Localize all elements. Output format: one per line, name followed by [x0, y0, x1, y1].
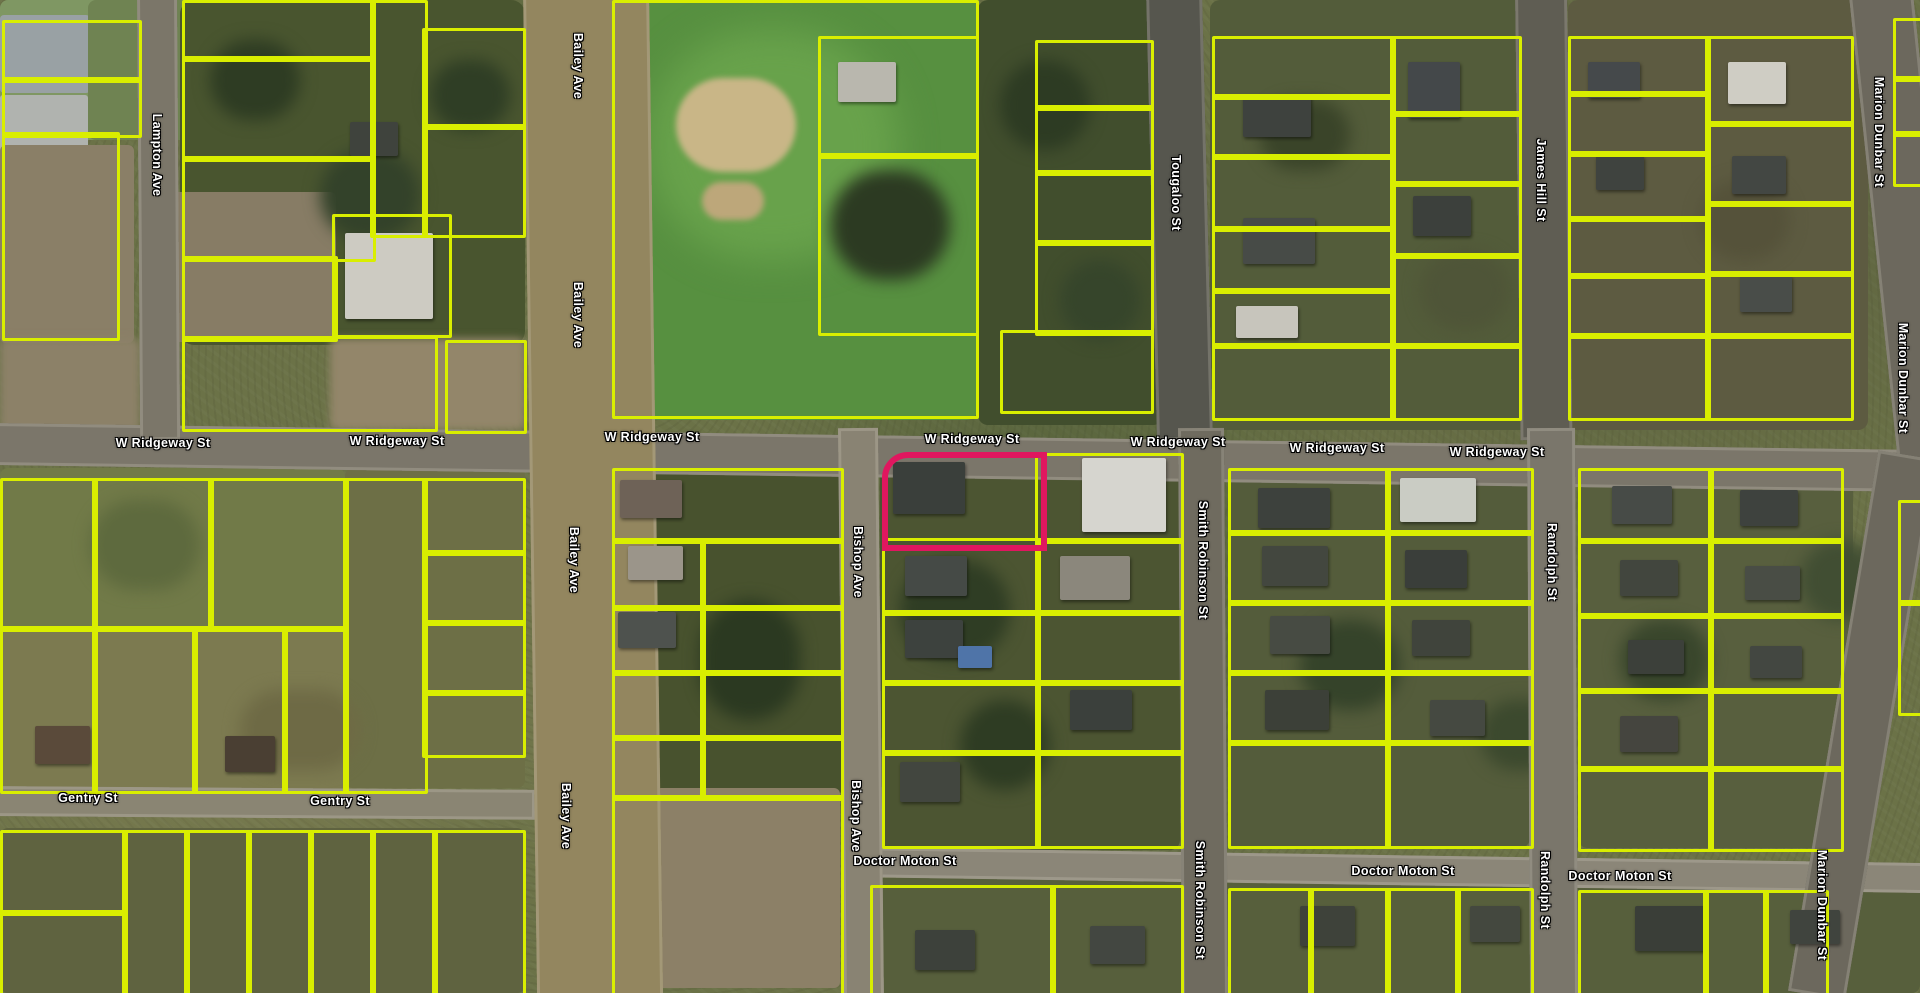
parcel-boundary[interactable] — [343, 478, 428, 794]
parcel-boundary[interactable] — [1578, 538, 1714, 619]
parcel-boundary[interactable] — [1035, 610, 1184, 686]
parcel-boundary[interactable] — [1000, 330, 1154, 414]
parcel-boundary[interactable] — [370, 830, 438, 993]
parcel-boundary[interactable] — [0, 830, 128, 916]
parcel-boundary[interactable] — [1578, 766, 1714, 852]
parcel-boundary[interactable] — [1385, 530, 1534, 606]
parcel-boundary[interactable] — [182, 256, 338, 342]
parcel-boundary[interactable] — [1705, 36, 1854, 127]
parcel-boundary[interactable] — [700, 605, 844, 676]
parcel-boundary[interactable] — [818, 36, 979, 159]
parcel-boundary[interactable] — [1705, 201, 1854, 277]
parcel-boundary[interactable] — [1390, 111, 1522, 187]
parcel-boundary[interactable] — [1568, 151, 1711, 222]
road-randolph-st — [1527, 428, 1578, 993]
parcel-boundary[interactable] — [612, 468, 844, 544]
parcel-boundary[interactable] — [208, 478, 349, 632]
parcel-boundary[interactable] — [1385, 670, 1534, 746]
road-james-hill-st — [1515, 0, 1572, 440]
parcel-boundary[interactable] — [1708, 688, 1844, 772]
parcel-boundary[interactable] — [1308, 888, 1391, 993]
parcel-boundary[interactable] — [1568, 273, 1711, 339]
parcel-boundary[interactable] — [1893, 76, 1920, 137]
road-smith-robinson-st — [1178, 428, 1228, 993]
parcel-boundary[interactable] — [1212, 154, 1396, 232]
parcel-boundary[interactable] — [1385, 600, 1534, 676]
parcel-boundary[interactable] — [1212, 343, 1396, 421]
parcel-boundary[interactable] — [92, 626, 198, 794]
parcel-boundary[interactable] — [1035, 240, 1154, 336]
parcel-boundary[interactable] — [1578, 468, 1714, 544]
parcel-boundary[interactable] — [1578, 688, 1714, 772]
parcel-boundary[interactable] — [1893, 18, 1920, 82]
parcel-boundary[interactable] — [1390, 253, 1522, 349]
parcel-boundary[interactable] — [612, 605, 706, 676]
parcel-boundary[interactable] — [700, 670, 844, 741]
parcel-boundary[interactable] — [0, 626, 98, 794]
parcel-boundary[interactable] — [1763, 890, 1829, 993]
parcel-boundary[interactable] — [1390, 343, 1522, 421]
satellite-parcel-map[interactable]: W Ridgeway StW Ridgeway StW Ridgeway StW… — [0, 0, 1920, 993]
parcel-boundary[interactable] — [192, 626, 288, 794]
parcel-boundary[interactable] — [122, 830, 190, 993]
parcel-boundary[interactable] — [700, 538, 844, 611]
parcel-boundary[interactable] — [882, 610, 1041, 686]
parcel-boundary[interactable] — [1228, 468, 1391, 536]
parcel-boundary[interactable] — [1568, 333, 1711, 421]
parcel-boundary[interactable] — [1568, 91, 1711, 157]
parcel-boundary[interactable] — [422, 690, 526, 758]
parcel-boundary[interactable] — [882, 680, 1041, 756]
parcel-boundary[interactable] — [2, 132, 120, 341]
parcel-boundary[interactable] — [1035, 750, 1184, 849]
parcel-boundary[interactable] — [2, 20, 142, 83]
parcel-boundary[interactable] — [1568, 36, 1711, 97]
parcel-boundary[interactable] — [182, 56, 376, 162]
parcel-boundary[interactable] — [612, 670, 706, 741]
parcel-boundary[interactable] — [1708, 766, 1844, 852]
parcel-boundary[interactable] — [1212, 94, 1396, 160]
parcel-boundary[interactable] — [612, 735, 706, 801]
parcel-boundary[interactable] — [1385, 740, 1534, 849]
parcel-boundary[interactable] — [1385, 468, 1534, 536]
parcel-boundary[interactable] — [1455, 888, 1534, 993]
parcel-boundary[interactable] — [1705, 121, 1854, 207]
parcel-boundary[interactable] — [432, 830, 526, 993]
parcel-boundary[interactable] — [1212, 288, 1396, 349]
parcel-boundary[interactable] — [1893, 131, 1920, 187]
parcel-boundary[interactable] — [422, 550, 526, 626]
parcel-boundary[interactable] — [1035, 453, 1184, 544]
parcel-boundary[interactable] — [1898, 500, 1920, 606]
selected-parcel-highlight[interactable] — [882, 452, 1047, 551]
parcel-boundary[interactable] — [370, 0, 428, 238]
parcel-boundary[interactable] — [1703, 890, 1769, 993]
parcel-boundary[interactable] — [308, 830, 376, 993]
parcel-boundary[interactable] — [1035, 680, 1184, 756]
parcel-boundary[interactable] — [182, 336, 438, 432]
parcel-boundary[interactable] — [818, 153, 979, 336]
parcel-boundary[interactable] — [1228, 600, 1391, 676]
parcel-boundary[interactable] — [422, 620, 526, 696]
parcel-boundary[interactable] — [1898, 600, 1920, 716]
parcel-boundary[interactable] — [612, 538, 706, 611]
parcel-boundary[interactable] — [182, 0, 376, 62]
parcel-boundary[interactable] — [870, 885, 1056, 993]
parcel-boundary[interactable] — [1385, 888, 1461, 993]
parcel-boundary[interactable] — [1212, 36, 1396, 100]
parcel-boundary[interactable] — [1390, 181, 1522, 259]
parcel-boundary[interactable] — [1708, 468, 1844, 544]
parcel-boundary[interactable] — [1035, 105, 1154, 176]
road-tougaloo-st — [1146, 0, 1213, 441]
parcel-boundary[interactable] — [1578, 890, 1709, 993]
parcel-boundary[interactable] — [422, 28, 526, 130]
parcel-boundary[interactable] — [1228, 888, 1314, 993]
parcel-boundary[interactable] — [1050, 885, 1184, 993]
parcel-boundary[interactable] — [882, 750, 1041, 849]
parcel-boundary[interactable] — [92, 478, 214, 632]
parcel-boundary[interactable] — [1035, 538, 1184, 616]
parcel-boundary[interactable] — [1212, 226, 1396, 294]
parcel-boundary[interactable] — [2, 77, 142, 138]
parcel-boundary[interactable] — [0, 478, 98, 632]
parcel-boundary[interactable] — [1705, 333, 1854, 421]
parcel-boundary[interactable] — [445, 340, 527, 434]
parcel-boundary[interactable] — [1708, 613, 1844, 694]
parcel-boundary[interactable] — [282, 626, 349, 794]
parcel-boundary[interactable] — [422, 478, 526, 556]
parcel-boundary[interactable] — [0, 910, 128, 993]
parcel-boundary[interactable] — [1035, 40, 1154, 111]
terrain-patch — [0, 338, 140, 433]
parcel-boundary[interactable] — [1705, 271, 1854, 339]
parcel-boundary[interactable] — [1568, 216, 1711, 279]
road-lampton-ave — [137, 0, 180, 440]
parcel-boundary[interactable] — [1578, 613, 1714, 694]
parcel-boundary[interactable] — [246, 830, 314, 993]
parcel-boundary[interactable] — [612, 795, 844, 993]
parcel-boundary[interactable] — [1228, 530, 1391, 606]
parcel-boundary[interactable] — [1390, 36, 1522, 117]
parcel-boundary[interactable] — [700, 735, 844, 801]
parcel-boundary[interactable] — [1228, 670, 1391, 746]
parcel-boundary[interactable] — [1708, 538, 1844, 619]
parcel-boundary[interactable] — [184, 830, 252, 993]
parcel-boundary[interactable] — [1228, 740, 1391, 849]
parcel-boundary[interactable] — [332, 214, 452, 338]
parcel-boundary[interactable] — [1035, 170, 1154, 246]
